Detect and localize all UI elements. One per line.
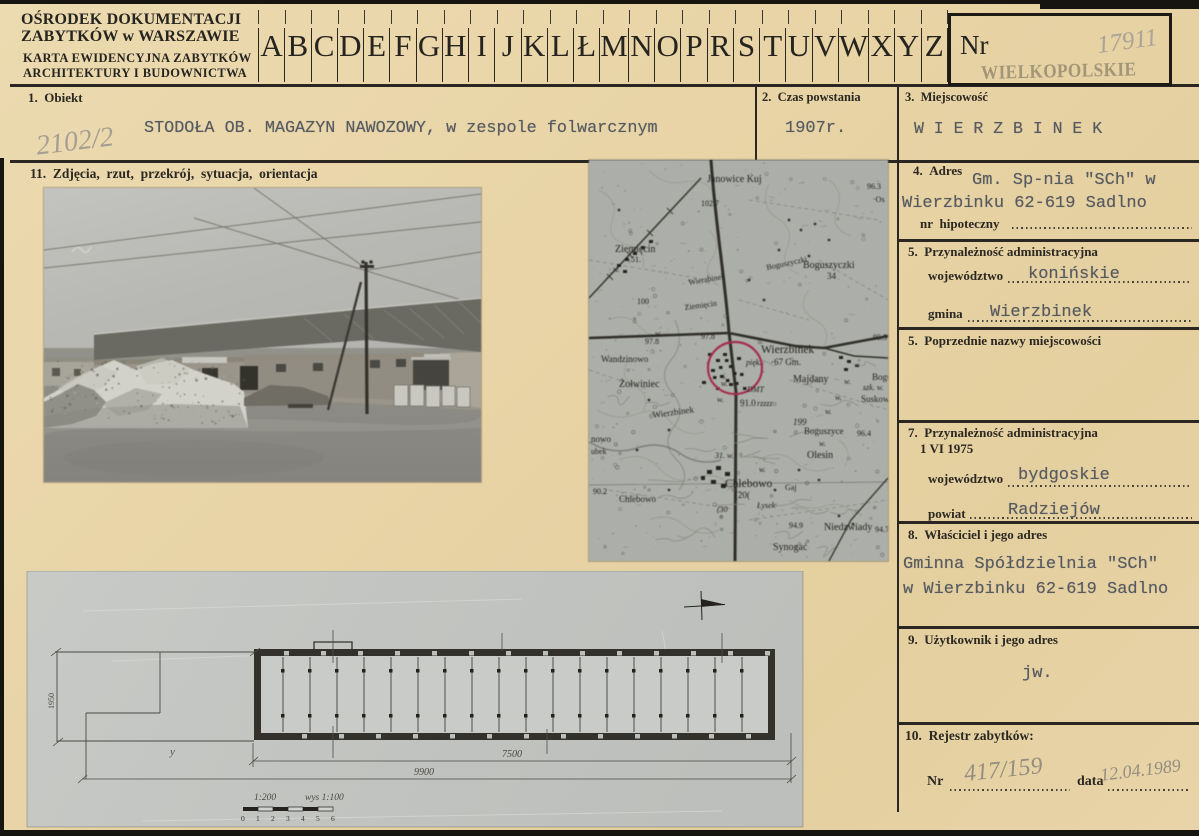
svg-text:w.: w. (819, 439, 826, 448)
svg-text:(30: (30 (717, 505, 728, 514)
svg-text:pięk.: pięk. (745, 358, 761, 367)
svg-text:1:200: 1:200 (254, 793, 276, 803)
svg-text:34: 34 (827, 271, 837, 281)
svg-text:0: 0 (241, 814, 245, 823)
svg-text:w.: w. (759, 465, 766, 474)
svg-text:wys 1:100: wys 1:100 (305, 793, 344, 803)
svg-text:Janowice Kuj: Janowice Kuj (707, 174, 762, 185)
svg-text:102.7: 102.7 (701, 199, 719, 208)
svg-text:Niedzwiady: Niedzwiady (824, 522, 872, 533)
svg-text:w.: w. (825, 407, 832, 416)
svg-text:4: 4 (301, 814, 305, 823)
svg-text:(20(: (20( (735, 490, 750, 500)
svg-text:2: 2 (271, 814, 275, 823)
svg-text:51.: 51. (631, 255, 641, 264)
svg-text:96.4: 96.4 (857, 429, 871, 438)
svg-text:Majdany: Majdany (793, 374, 829, 385)
svg-text:97.8: 97.8 (645, 337, 659, 346)
svg-text:Synogać: Synogać (773, 542, 808, 553)
svg-text:·Os: ·Os (873, 195, 885, 204)
svg-text:6: 6 (331, 814, 335, 823)
svg-text:1: 1 (256, 814, 260, 823)
svg-text:Boguszyczki: Boguszyczki (803, 260, 855, 271)
svg-text:9900: 9900 (414, 767, 434, 778)
svg-text:199: 199 (793, 417, 807, 427)
svg-text:90.2: 90.2 (593, 487, 607, 496)
svg-text:Suskowo: Suskowo (861, 394, 888, 404)
svg-text:Wierzbinek: Wierzbinek (761, 344, 814, 356)
svg-text:Łysek: Łysek (756, 501, 776, 510)
svg-text:95.5: 95.5 (873, 333, 887, 342)
svg-text:94.9: 94.9 (789, 521, 803, 530)
svg-text:7500: 7500 (502, 749, 522, 760)
svg-text:w.: w. (655, 329, 662, 338)
svg-text:5: 5 (316, 814, 320, 823)
svg-text:y: y (169, 746, 175, 758)
svg-text:w.: w. (835, 393, 842, 402)
svg-text:Chlebowo: Chlebowo (619, 494, 656, 504)
svg-text:w.: w. (717, 395, 724, 404)
svg-text:w.: w. (844, 377, 851, 386)
svg-text:Ziemięcin: Ziemięcin (615, 244, 656, 255)
svg-text:Chlebowo: Chlebowo (725, 478, 773, 490)
svg-text:DMT: DMT (746, 385, 764, 394)
svg-text:ubek: ubek (591, 447, 607, 456)
svg-text:Bogus: Bogus (872, 372, 888, 382)
svg-text:w.: w. (613, 265, 620, 274)
svg-text:Wandzinowo: Wandzinowo (601, 354, 649, 364)
svg-text:szk. w.: szk. w. (863, 383, 884, 392)
svg-text:Boguszyce: Boguszyce (804, 426, 844, 436)
svg-text:1950: 1950 (47, 693, 56, 709)
svg-text:91.0: 91.0 (740, 398, 756, 408)
svg-text:100: 100 (637, 297, 649, 306)
svg-text:·67 Gm.: ·67 Gm. (771, 357, 801, 367)
svg-text:Gaj: Gaj (785, 483, 797, 492)
svg-text:3: 3 (286, 814, 290, 823)
svg-text:31. w.: 31. w. (714, 451, 734, 460)
svg-text:rzzzz: rzzzz (757, 399, 773, 408)
svg-text:97.8: 97.8 (701, 332, 715, 341)
svg-text:Żołwiniec: Żołwiniec (619, 378, 660, 390)
svg-text:w.: w. (721, 379, 728, 388)
svg-text:96.3: 96.3 (867, 182, 881, 191)
svg-text:94.7: 94.7 (875, 525, 888, 534)
svg-text:nowo: nowo (591, 434, 611, 444)
svg-text:Olesin: Olesin (807, 450, 833, 461)
